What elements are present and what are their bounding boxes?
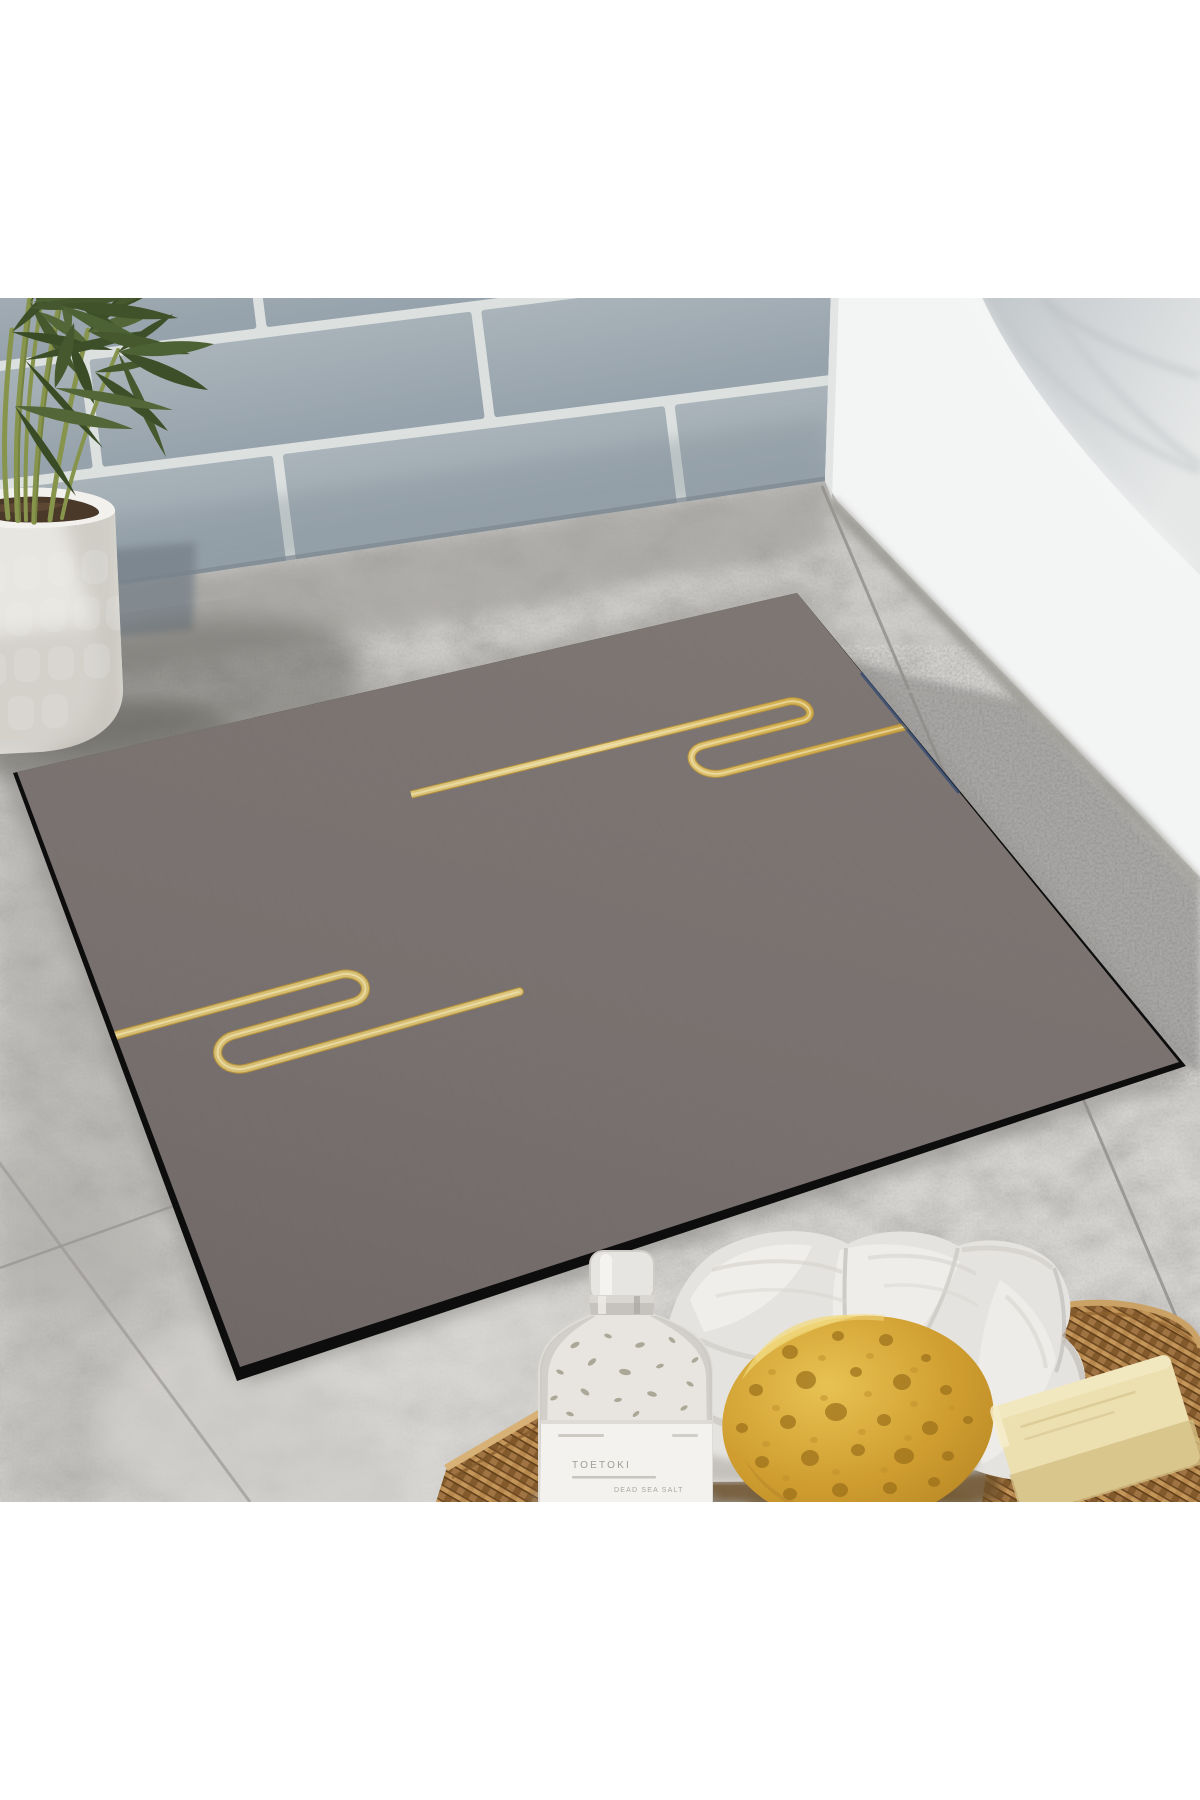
svg-text:DEAD SEA SALT: DEAD SEA SALT xyxy=(614,1487,684,1494)
svg-text:TOETOKI: TOETOKI xyxy=(572,1460,631,1471)
